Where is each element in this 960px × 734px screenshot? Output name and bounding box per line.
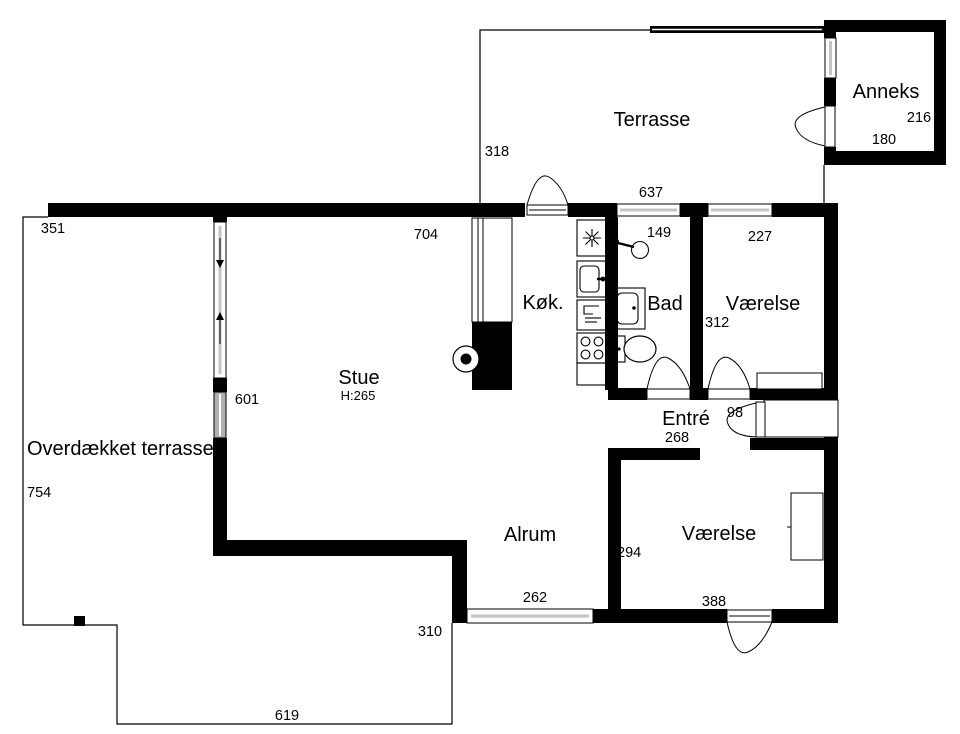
appliance-icon [584,306,601,322]
floor-plan-page: Terrasse Anneks 216 180 318 637 351 704 … [0,0,960,734]
window-alrum-south [467,609,593,623]
label-anneks: Anneks [853,81,920,103]
label-vaerelse-syd: Værelse [682,523,756,545]
label-stue: Stue [338,367,379,389]
dim-stue-width: 704 [414,227,438,243]
cooktop-icon [581,337,603,359]
dim-anneks-height: 216 [907,110,931,126]
kitchen-counter [577,220,606,385]
snowflake-icon [583,229,601,247]
label-overdaekket: Overdækket terrasse [27,438,214,460]
dim-entre-door: 98 [727,405,743,421]
dim-alrum-window: 262 [523,590,547,606]
covered-terrace-outline [23,217,452,724]
label-alrum: Alrum [504,524,556,546]
dim-vaerelse-nord-width: 227 [748,229,772,245]
toilet-icon [614,336,656,362]
floor-plan-drawing: Terrasse Anneks 216 180 318 637 351 704 … [0,0,960,734]
wall-west-top [213,203,227,222]
window-vaerelse-north [708,204,772,216]
wall-north-a [48,203,525,217]
wood-stove-icon [453,346,479,372]
wall-vaerelse2-west [608,448,621,623]
label-stue-height: H:265 [341,388,376,403]
label-entre: Entré [662,408,710,430]
wall-east-bottom [824,437,838,623]
label-kok: Køk. [522,292,563,314]
dim-terrasse-width: 637 [639,185,663,201]
kitchen-box-cooktop [577,333,606,363]
wall-east-top [824,203,838,400]
wall-vaerelse2-north-b [750,438,838,450]
wall-north-b [568,203,617,217]
sliding-door-stue-west [214,392,226,438]
terrace-post [74,616,85,626]
dim-bad-width: 149 [647,225,671,241]
dim-entre-width: 268 [665,430,689,446]
door-vaerelse-south [727,610,772,653]
dim-covered-width: 351 [41,221,65,237]
label-bad: Bad [647,293,683,315]
wall-alrum-west [452,556,467,623]
dim-stue-window: 601 [235,392,259,408]
dim-covered-bottom: 619 [275,708,299,724]
dim-alrum-step: 310 [418,624,442,640]
entrance-porch [764,400,838,437]
door-bad [647,357,690,399]
door-anneks [795,106,835,147]
wall-north-c [680,203,708,217]
window-bad-north [617,204,680,216]
anneks-wall-south [824,151,946,165]
anneks-wall-west-b [824,78,836,106]
wall-west-mid [213,378,227,392]
label-vaerelse-nord: Værelse [726,293,800,315]
dim-covered-height: 754 [27,485,51,501]
anneks-wall-east [934,30,946,155]
anneks-wall-north [824,20,946,32]
wardrobe-south-room [791,493,823,560]
kitchen-box-counter [577,363,606,385]
label-terrasse: Terrasse [614,109,691,131]
wall-stue-south [213,540,467,556]
fixtures [216,220,656,385]
wall-west-bottom [213,438,227,556]
door-terrace [527,176,568,215]
dim-terrasse-height: 318 [485,144,509,160]
sink-icon [580,266,606,292]
wardrobe-north-room [757,373,822,389]
anneks-wall-west-a [824,30,836,38]
wall-entre-north-c [750,388,838,400]
dim-vaerelse-syd-width: 388 [702,594,726,610]
window-anneks-west [825,38,836,78]
wall-bad-vaerelse [690,217,703,390]
dim-vaerelse-nord-height: 312 [705,315,729,331]
wall-vaerelse2-north-a [608,448,700,460]
door-vaerelse-north [708,357,750,399]
dim-anneks-width: 180 [872,132,896,148]
wall-entre-north-a [608,388,647,400]
kitchen-box-appliance [577,300,606,330]
dim-alrum-height: 294 [617,545,641,561]
wall-entre-north-b [690,388,708,400]
